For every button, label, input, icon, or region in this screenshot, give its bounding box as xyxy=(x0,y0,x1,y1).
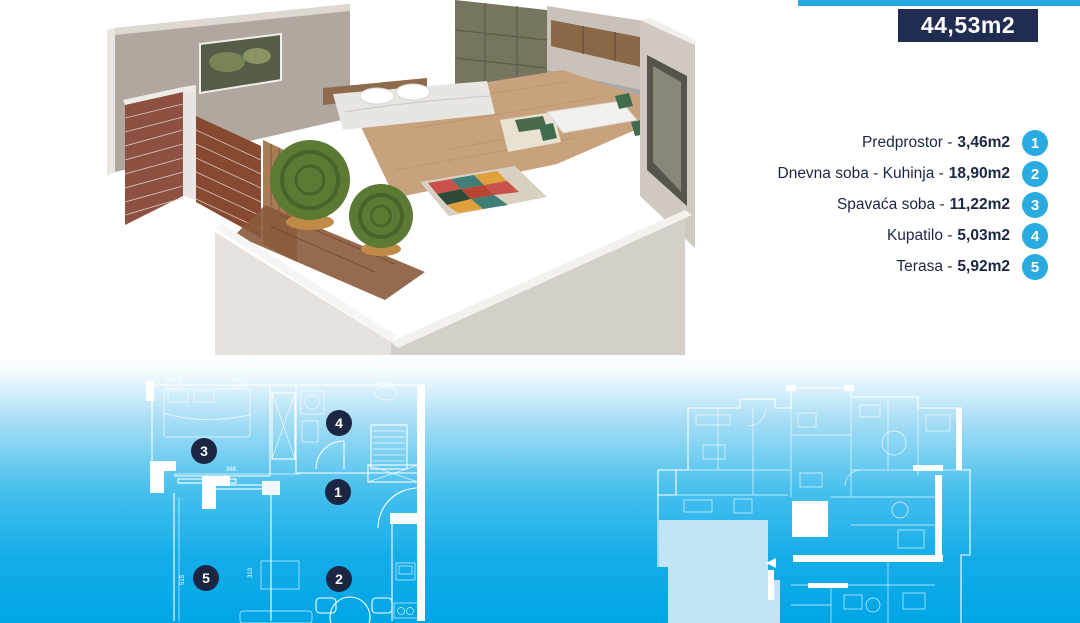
room-number-badge: 2 xyxy=(1022,161,1048,187)
wardrobe-symbol xyxy=(272,393,295,459)
room-list-item: Kupatilo -5,03m2 4 xyxy=(778,224,1049,248)
room-area: 5,03m2 xyxy=(957,227,1010,244)
dimension-label: 368 xyxy=(226,467,237,473)
room-name: Predprostor - xyxy=(862,134,952,151)
room-name: Dnevna soba - Kuhinja - xyxy=(778,165,944,182)
room-name: Kupatilo - xyxy=(887,227,952,244)
room-name: Terasa - xyxy=(896,258,952,275)
plan-marker-3: 3 xyxy=(191,438,217,464)
room-area: 18,90m2 xyxy=(949,165,1010,182)
room-number-badge: 4 xyxy=(1022,223,1048,249)
bed-symbol xyxy=(164,379,250,437)
apartment-3d-render xyxy=(95,0,695,360)
dimension-label: 515 xyxy=(180,574,186,585)
room-area: 11,22m2 xyxy=(950,196,1010,213)
room-list-item: Dnevna soba - Kuhinja -18,90m2 2 xyxy=(778,162,1049,186)
building-floorplan xyxy=(648,375,980,623)
bathroom-fixtures xyxy=(301,383,407,469)
room-list-item: Terasa -5,92m2 5 xyxy=(778,255,1049,279)
room-list-item: Predprostor -3,46m2 1 xyxy=(778,131,1049,155)
plan-walls xyxy=(146,381,425,621)
top-accent-bar xyxy=(798,0,1080,6)
area-value: 44,53m2 xyxy=(921,12,1015,39)
plan-marker-5: 5 xyxy=(193,565,219,591)
room-list: Predprostor -3,46m2 1 Dnevna soba - Kuhi… xyxy=(778,131,1049,279)
room-area: 5,92m2 xyxy=(957,258,1010,275)
plan-marker-4: 4 xyxy=(326,410,352,436)
dimension-label: 313 xyxy=(248,567,254,578)
floorplan-2d: 368 313 515 xyxy=(140,373,432,623)
highlighted-unit xyxy=(659,520,780,623)
room-number-badge: 1 xyxy=(1022,130,1048,156)
page: 44,53m2 Predprostor -3,46m2 1 Dnevna sob… xyxy=(0,0,1080,623)
room-name: Spavaća soba - xyxy=(837,196,945,213)
plan-marker-1: 1 xyxy=(325,479,351,505)
room-number-badge: 3 xyxy=(1022,192,1048,218)
room-list-item: Spavaća soba -11,22m2 3 xyxy=(778,193,1049,217)
room-number-badge: 5 xyxy=(1022,254,1048,280)
area-badge: 44,53m2 xyxy=(898,9,1038,42)
room-area: 3,46m2 xyxy=(957,134,1010,151)
plan-marker-2: 2 xyxy=(326,566,352,592)
